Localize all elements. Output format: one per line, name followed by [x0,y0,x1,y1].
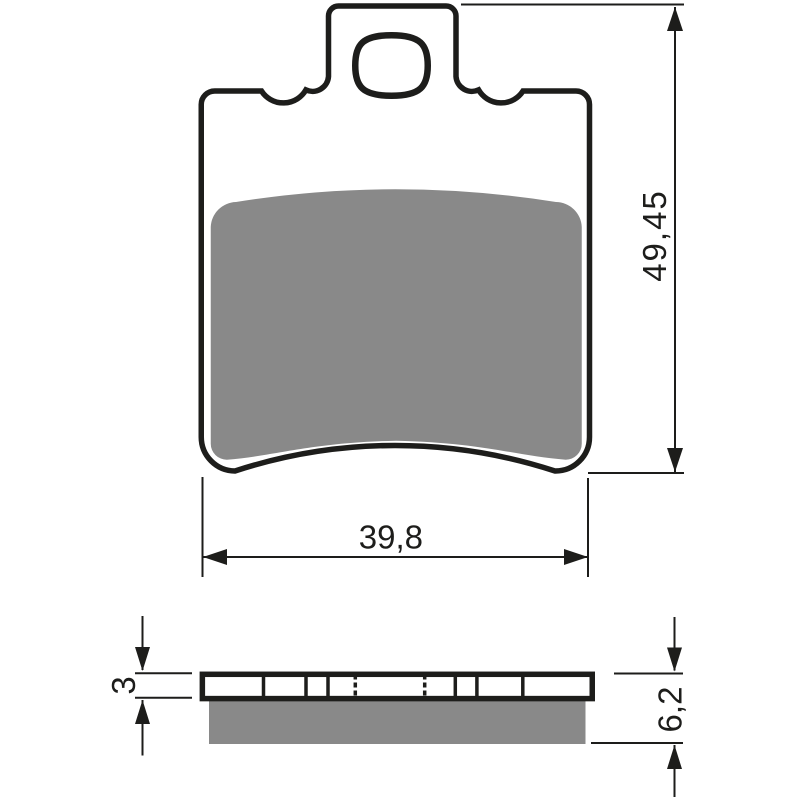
svg-text:49,45: 49,45 [636,189,673,282]
svg-text:3: 3 [105,676,142,694]
svg-text:39,8: 39,8 [359,519,423,556]
svg-text:6,2: 6,2 [652,687,689,733]
